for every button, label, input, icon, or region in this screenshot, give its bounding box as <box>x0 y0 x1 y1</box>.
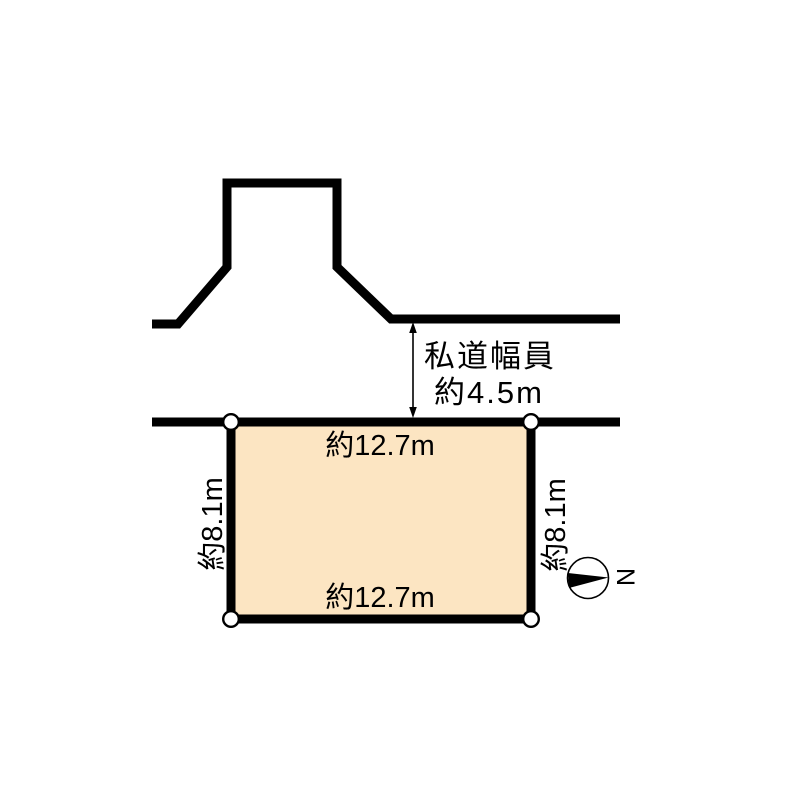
north-label: N <box>611 568 639 586</box>
compass: N <box>568 558 640 599</box>
road-width-label-line2: 約4.5m <box>434 375 544 410</box>
corner-marker-bottom-right <box>523 611 539 627</box>
corner-marker-top-left <box>223 414 239 430</box>
corner-marker-bottom-left <box>223 611 239 627</box>
site-plan-diagram: 私道幅員 約4.5m 約12.7m 約12.7m 約8.1m 約8.1m N <box>0 0 800 800</box>
road-width-arrow-head-down-icon <box>409 407 417 418</box>
road-width-arrow-head-up-icon <box>409 322 417 333</box>
bottom-dimension-label: 約12.7m <box>325 581 435 614</box>
corner-marker-top-right <box>523 414 539 430</box>
upper-road-boundary <box>152 183 620 324</box>
road-width-label-line1: 私道幅員 <box>424 339 556 374</box>
right-dimension-label: 約8.1m <box>539 478 572 571</box>
top-dimension-label: 約12.7m <box>325 429 435 462</box>
road-width-arrow <box>409 322 417 418</box>
site-plan-canvas: 私道幅員 約4.5m 約12.7m 約12.7m 約8.1m 約8.1m N <box>0 0 800 800</box>
left-dimension-label: 約8.1m <box>196 477 229 570</box>
